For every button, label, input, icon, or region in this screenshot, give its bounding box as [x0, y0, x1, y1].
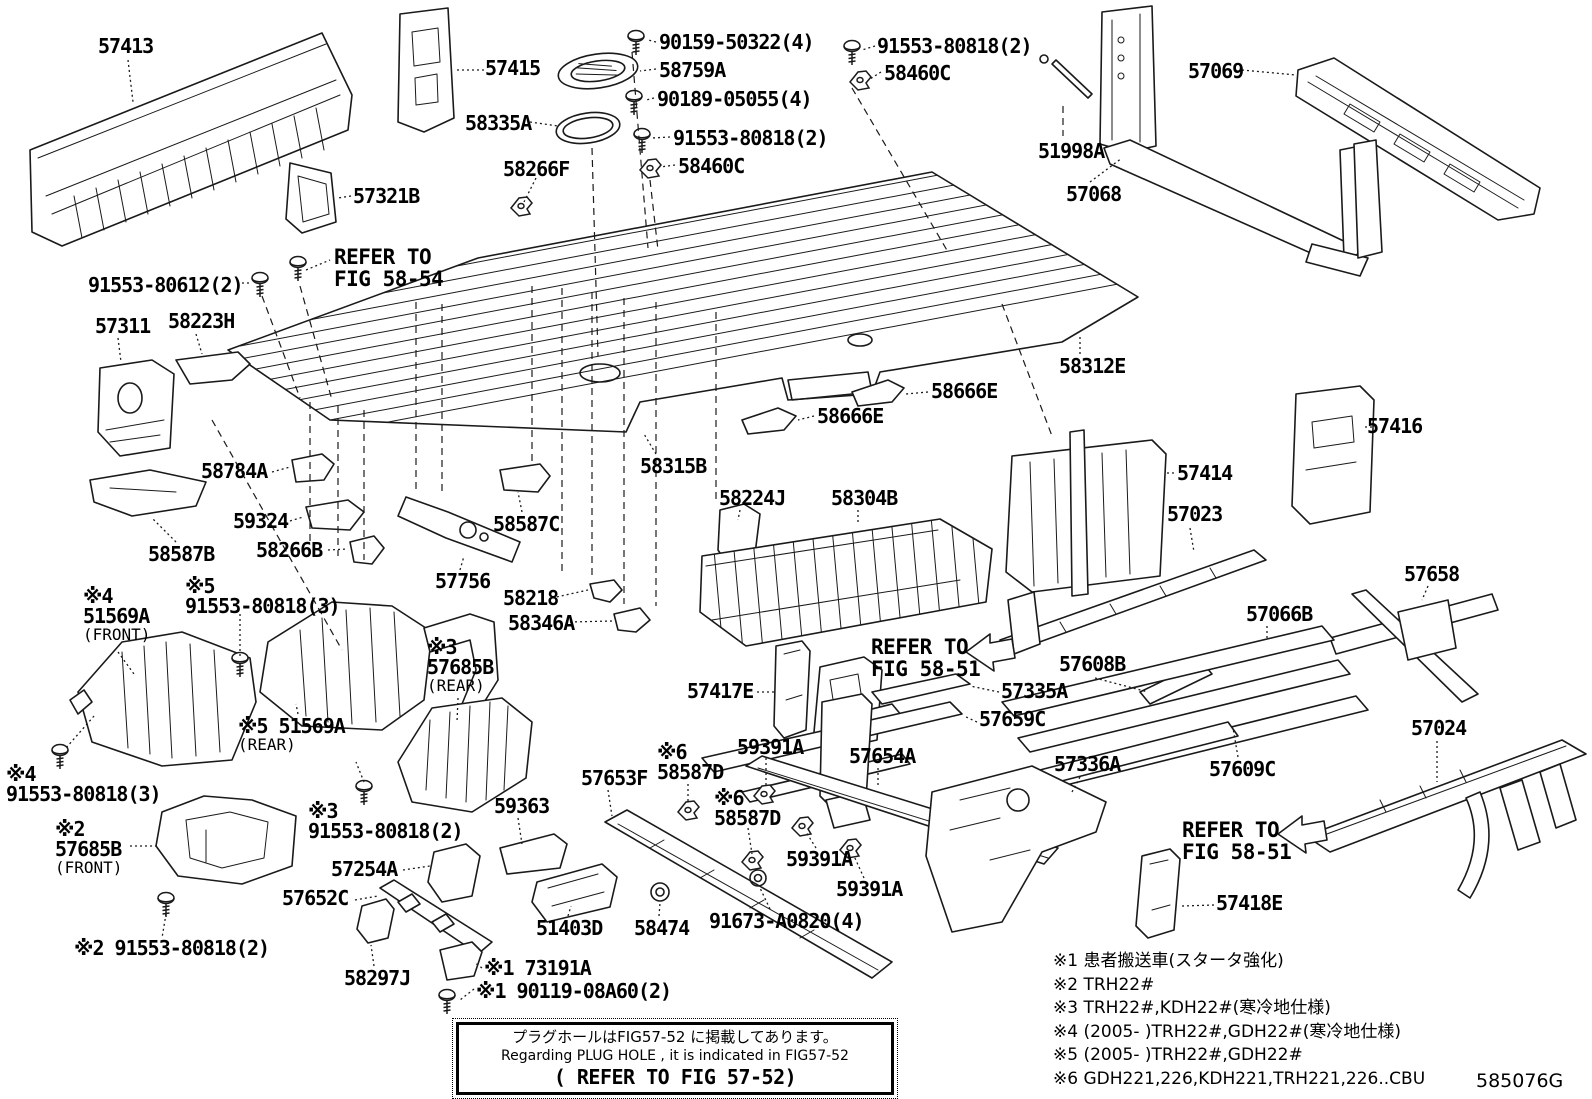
part-label-57608B: 57608B — [1059, 654, 1125, 674]
part-label-90119-08A60: ※1 90119-08A60(2) — [476, 981, 671, 1001]
variant-note: ※6 GDH221,226,KDH221,TRH221,226..CBU — [1053, 1068, 1425, 1092]
part-label-57658: 57658 — [1404, 564, 1459, 584]
cover-57685B-front — [156, 796, 296, 884]
part-label-57654A: 57654A — [849, 746, 915, 766]
part-label-57685B-rear: ※357685B(REAR) — [427, 637, 493, 694]
part-label-91553-80818-3-mid: ※591553-80818(3) — [185, 576, 340, 616]
bracket-57321B — [286, 163, 336, 233]
ring-58335A — [554, 109, 622, 148]
part-label-91553-80818-mid: 91553-80818(2) — [673, 128, 828, 148]
bracket-57417E — [774, 641, 810, 738]
part-label-57609C: 57609C — [1209, 759, 1275, 779]
variant-note: ※4 (2005- )TRH22#,GDH22#(寒冷地仕様) — [1053, 1021, 1425, 1045]
part-label-58304B: 58304B — [831, 488, 897, 508]
part-label-58223H: 58223H — [168, 311, 234, 331]
rod-51998A — [1040, 55, 1092, 98]
part-label-58759A: 58759A — [659, 60, 725, 80]
part-label-58460C-tr: 58460C — [884, 63, 950, 83]
part-label-57335A: 57335A — [1001, 681, 1067, 701]
plug-note-refer: ( REFER TO FIG 57-52) — [459, 1065, 891, 1089]
part-label-90159-50322: 90159-50322(4) — [659, 32, 814, 52]
figure-code: 585076G — [1476, 1070, 1563, 1092]
part-label-58346A: 58346A — [508, 613, 574, 633]
part-label-59391A-b: 59391A — [786, 849, 852, 869]
part-label-57653F: 57653F — [581, 768, 647, 788]
part-label-59363: 59363 — [494, 796, 549, 816]
panel-57416 — [1292, 386, 1374, 524]
part-label-91553-80818-3-bl: ※491553-80818(3) — [6, 764, 161, 804]
part-label-57413: 57413 — [98, 36, 153, 56]
part-label-58335A: 58335A — [465, 113, 531, 133]
part-label-58315B: 58315B — [640, 456, 706, 476]
part-label-59391A-c: 59391A — [836, 879, 902, 899]
part-label-73191A: ※1 73191A — [484, 958, 591, 978]
part-label-91553-80818-2-b3: ※391553-80818(2) — [308, 801, 463, 841]
variant-note: ※1 患者搬送車(スタータ強化) — [1053, 950, 1425, 974]
member-57658 — [1330, 590, 1498, 702]
part-label-58266F: 58266F — [503, 159, 569, 179]
bracket-57311 — [98, 360, 174, 456]
part-label-58266B: 58266B — [256, 540, 322, 560]
part-label-57652C: 57652C — [282, 888, 348, 908]
refer-fig-58-51-a: REFER TOFIG 58-51 — [871, 636, 980, 680]
cover-51569A-front — [70, 632, 256, 766]
plate-58759A — [556, 49, 640, 94]
variant-note: ※3 TRH22#,KDH22#(寒冷地仕様) — [1053, 997, 1425, 1021]
part-label-57024: 57024 — [1411, 718, 1466, 738]
part-label-58218: 58218 — [503, 588, 558, 608]
pillar-57068 — [1100, 6, 1368, 276]
part-label-57418E: 57418E — [1216, 893, 1282, 913]
variant-note: ※5 (2005- )TRH22#,GDH22# — [1053, 1044, 1425, 1068]
part-label-91553-80818-2-b2: ※2 91553-80818(2) — [74, 938, 269, 958]
part-label-91553-80612: 91553-80612(2) — [88, 275, 243, 295]
bracket-57415 — [398, 8, 454, 132]
part-label-58587D-a: ※658587D — [657, 742, 723, 782]
part-label-58297J: 58297J — [344, 968, 410, 988]
part-label-51569A-rear: ※5 51569A(REAR) — [238, 716, 345, 753]
part-label-58666E-a: 58666E — [931, 381, 997, 401]
part-label-57066B: 57066B — [1246, 604, 1312, 624]
part-label-91553-80818-tr: 91553-80818(2) — [877, 36, 1032, 56]
refer-fig-58-54: REFER TOFIG 58-54 — [334, 246, 443, 290]
diagram-line-art — [0, 0, 1592, 1099]
bracket-58223H — [176, 352, 250, 384]
part-label-57023: 57023 — [1167, 504, 1222, 524]
parts-diagram-figure: 574135741590159-50322(4)58759A90189-0505… — [0, 0, 1592, 1099]
part-label-57254A: 57254A — [331, 859, 397, 879]
part-label-57417E: 57417E — [687, 681, 753, 701]
part-label-58474: 58474 — [634, 918, 689, 938]
part-label-91673-A0820: 91673-A0820(4) — [709, 911, 864, 931]
part-label-58587D-b: ※658587D — [714, 788, 780, 828]
part-label-57416: 57416 — [1367, 416, 1422, 436]
part-label-58784A: 58784A — [201, 461, 267, 481]
part-label-58460C-mid: 58460C — [678, 156, 744, 176]
part-label-58587B: 58587B — [148, 544, 214, 564]
part-label-57685B-front: ※257685B(FRONT) — [55, 819, 122, 876]
plug-hole-note-box: プラグホールはFIG57-52 に掲載してあります。 Regarding PLU… — [456, 1022, 894, 1095]
plug-note-jp: プラグホールはFIG57-52 に掲載してあります。 — [459, 1028, 891, 1047]
part-label-59324: 59324 — [233, 511, 288, 531]
part-label-57311: 57311 — [95, 316, 150, 336]
part-label-57068: 57068 — [1066, 184, 1121, 204]
part-label-57321B: 57321B — [353, 186, 419, 206]
rail-57024 — [1306, 740, 1586, 898]
part-label-57069: 57069 — [1188, 61, 1243, 81]
part-label-58587C: 58587C — [493, 514, 559, 534]
part-label-51569A-front: ※451569A(FRONT) — [83, 586, 150, 643]
plug-note-en: Regarding PLUG HOLE , it is indicated in… — [459, 1047, 891, 1065]
panel-57414 — [1006, 430, 1166, 596]
part-label-59391A-a: 59391A — [737, 737, 803, 757]
part-label-57659C: 57659C — [979, 709, 1045, 729]
refer-fig-58-51-b: REFER TOFIG 58-51 — [1182, 819, 1291, 863]
part-label-58666E-b: 58666E — [817, 406, 883, 426]
part-label-58224J: 58224J — [719, 488, 785, 508]
part-label-57756: 57756 — [435, 571, 490, 591]
part-label-57414: 57414 — [1177, 463, 1232, 483]
part-label-90189-05055: 90189-05055(4) — [657, 89, 812, 109]
part-label-51998A: 51998A — [1038, 141, 1104, 161]
part-label-51403D: 51403D — [536, 918, 602, 938]
part-label-58312E: 58312E — [1059, 356, 1125, 376]
part-label-57415: 57415 — [485, 58, 540, 78]
variant-note: ※2 TRH22# — [1053, 974, 1425, 998]
part-label-57336A: 57336A — [1054, 754, 1120, 774]
bracket-57418E — [1136, 849, 1180, 938]
rail-57069 — [1296, 58, 1540, 258]
variant-notes: ※1 患者搬送車(スタータ強化)※2 TRH22#※3 TRH22#,KDH22… — [1053, 950, 1425, 1091]
